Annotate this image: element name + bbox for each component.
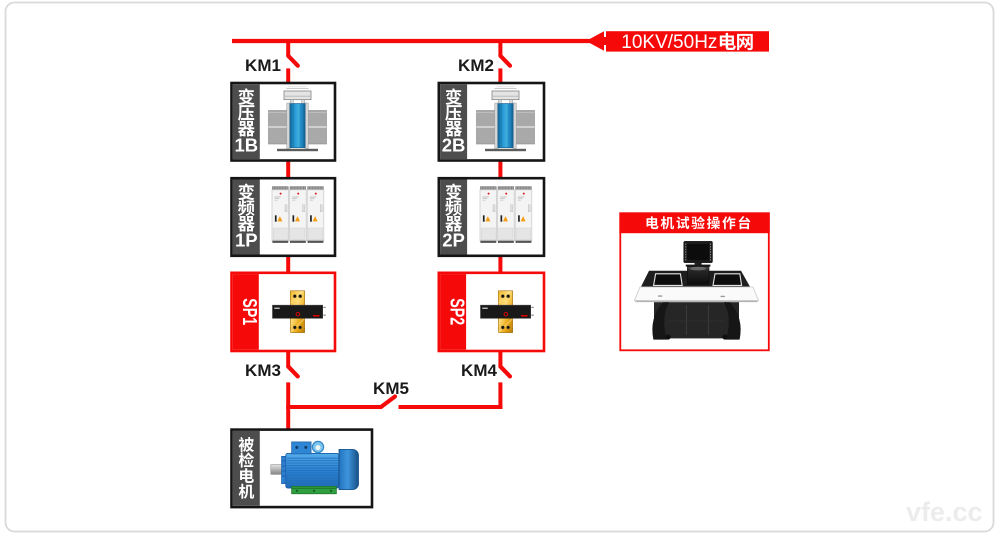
svg-text:2B: 2B — [442, 135, 466, 156]
svg-text:vfe.cc: vfe.cc — [906, 497, 983, 527]
svg-text:KM2: KM2 — [458, 56, 494, 75]
svg-text:10KV/50Hz: 10KV/50Hz — [621, 32, 717, 53]
svg-text:SP2: SP2 — [446, 298, 469, 325]
svg-text:1B: 1B — [234, 135, 258, 156]
svg-text:1P: 1P — [235, 230, 258, 251]
svg-text:2P: 2P — [442, 230, 465, 251]
svg-text:KM5: KM5 — [373, 379, 409, 398]
svg-text:SP1: SP1 — [238, 298, 261, 325]
svg-text:KM1: KM1 — [245, 56, 281, 75]
svg-text:KM3: KM3 — [245, 361, 281, 380]
svg-text:KM4: KM4 — [461, 361, 497, 380]
